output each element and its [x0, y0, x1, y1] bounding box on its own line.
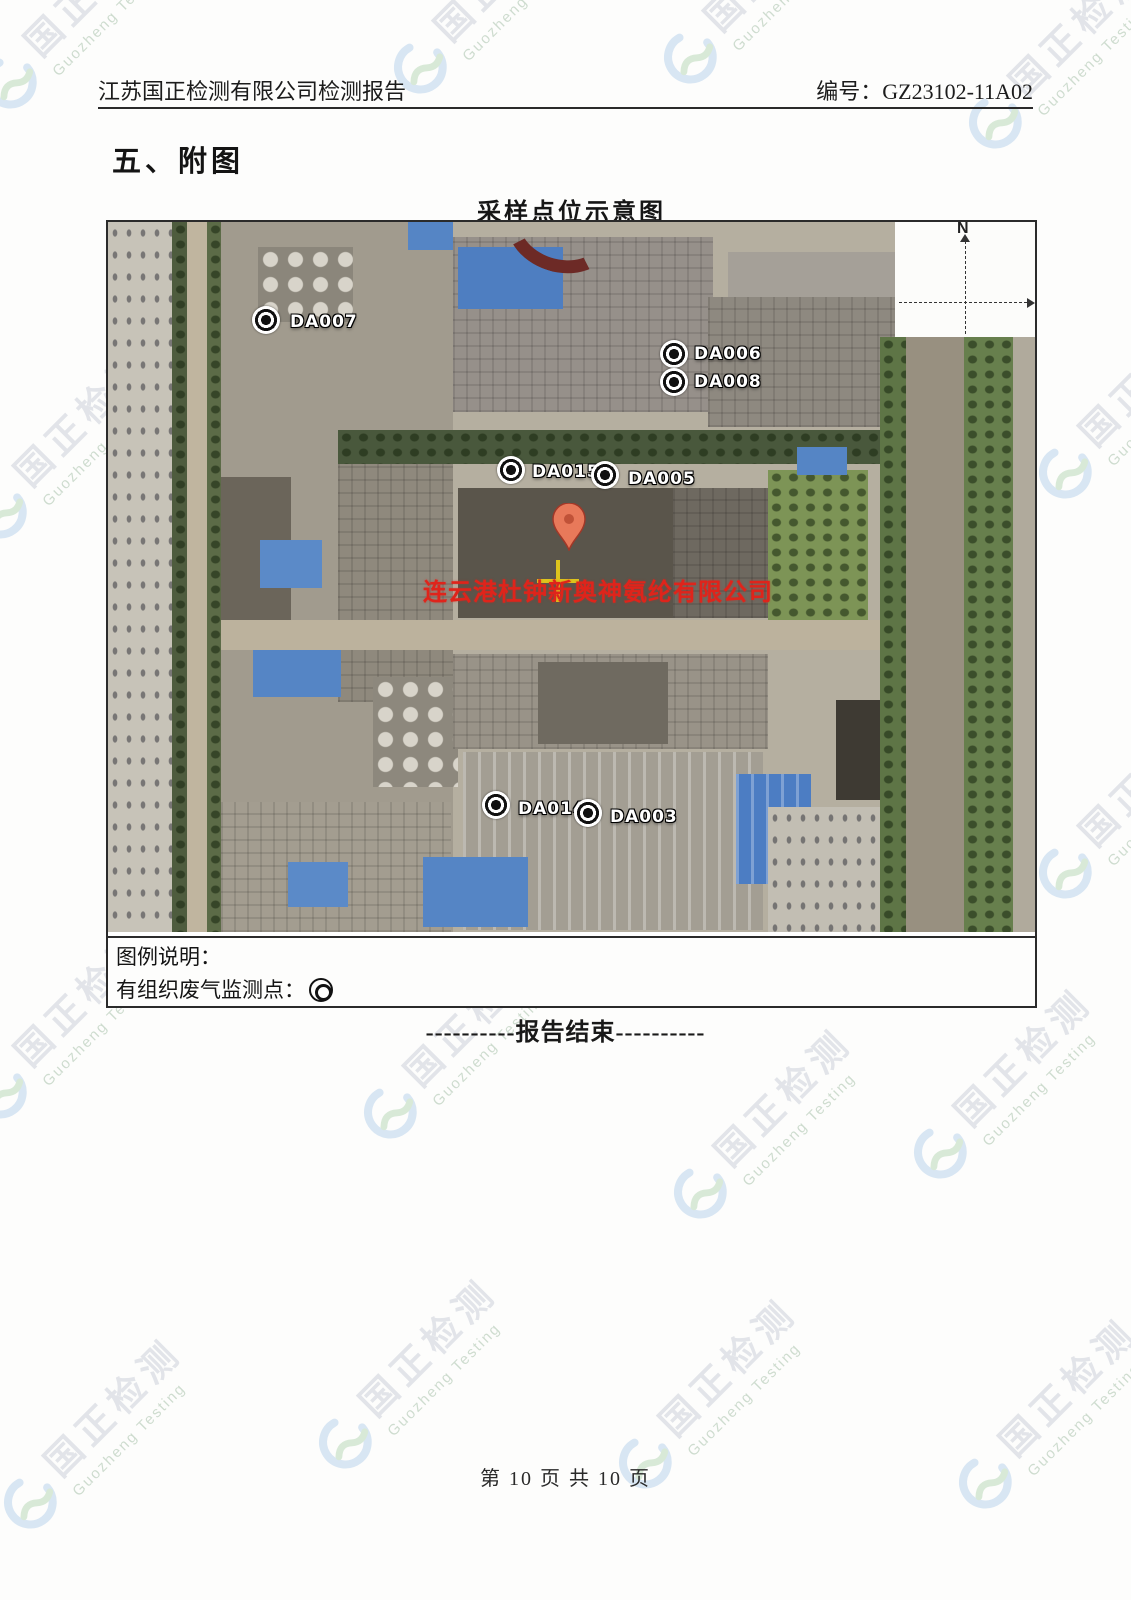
legend-item-label: 有组织废气监测点：	[116, 978, 305, 1002]
company-report-title: 江苏国正检测有限公司检测报告	[98, 74, 406, 106]
map-feature-blue-roof	[253, 647, 341, 697]
compass-north-label: N	[957, 222, 969, 238]
watermark-cn: 国正检测	[345, 1264, 508, 1427]
marker-label: DA007	[290, 312, 358, 332]
watermark-en: Guozheng Testing	[739, 1053, 875, 1189]
guozheng-logo-icon	[894, 1108, 982, 1196]
page-number: 第 10 页 共 10 页	[0, 1462, 1131, 1491]
watermark-cn: 国正检测	[1065, 294, 1131, 457]
map-feature-tree-row	[207, 222, 221, 932]
guozheng-logo-icon	[0, 1048, 42, 1136]
map-frame: N 连云港杜钟新奥神氨纶有限公司 DA007 DA006 DA008 DA	[106, 220, 1037, 1008]
marker-label: DA015	[532, 462, 600, 482]
report-page: 国正检测Guozheng Testing 国正检测Guozheng Testin…	[0, 0, 1131, 1600]
watermark-en: Guozheng Testing	[1034, 0, 1131, 120]
guozheng-logo-icon	[0, 38, 52, 126]
sampling-point-icon-DA015	[497, 456, 525, 484]
watermark: 国正检测Guozheng Testing	[0, 1324, 206, 1550]
marker-label: DA006	[694, 344, 762, 364]
map-feature-ground-east	[1013, 337, 1035, 932]
guozheng-logo-icon	[0, 468, 42, 556]
marker-label: DA008	[694, 372, 762, 392]
map-feature-tank-farm	[373, 677, 458, 787]
watermark: 国正检测Guozheng Testing	[650, 1014, 876, 1240]
marker-label: DA003	[610, 807, 678, 827]
header-rule	[98, 107, 1033, 109]
map-feature-blue-roof	[797, 447, 847, 475]
watermark-en: Guozheng Testing	[729, 0, 865, 55]
compass-horizontal-axis	[899, 302, 1031, 303]
watermark-en: Guozheng Testing	[684, 1323, 820, 1459]
watermark: 国正检测Guozheng Testing	[0, 0, 186, 129]
map-feature-parking-west	[108, 222, 172, 932]
watermark-cn: 国正检测	[690, 0, 853, 41]
watermark-cn: 国正检测	[985, 1304, 1131, 1467]
watermark-en: Guozheng Testing	[459, 0, 595, 65]
sampling-point-icon-DA003	[574, 799, 602, 827]
watermark-en: Guozheng Testing	[1104, 333, 1131, 469]
watermark: 国正检测Guozheng Testing	[935, 1304, 1131, 1530]
watermark-cn: 国正检测	[10, 0, 173, 66]
sampling-point-icon-DA005	[591, 461, 619, 489]
sampling-point-icon-DA014	[482, 791, 510, 819]
location-pin-icon	[551, 503, 587, 551]
map-feature-dark-unit	[538, 662, 668, 744]
report-number: 编号：GZ23102-11A02	[816, 74, 1033, 106]
sampling-point-icon-DA007	[252, 306, 280, 334]
map-feature-tree-row	[172, 222, 187, 932]
map-feature-blue-roof	[288, 862, 348, 907]
map-feature-blue-roof	[423, 857, 528, 927]
watermark-en: Guozheng Testing	[384, 1303, 520, 1439]
legend-title: 图例说明：	[116, 941, 221, 971]
sampling-point-icon-DA006	[660, 340, 688, 368]
watermark-en: Guozheng Testing	[1024, 1343, 1131, 1479]
sampling-point-icon-DA008	[660, 368, 688, 396]
compass-vertical-axis	[965, 238, 966, 334]
legend-item: 有组织废气监测点：	[116, 974, 333, 1004]
map-feature-road-west	[187, 222, 207, 932]
legend-box: 图例说明： 有组织废气监测点：	[108, 936, 1035, 1006]
map-feature-tree-row-east	[964, 337, 1013, 932]
map-feature-building-ne-strip	[728, 252, 908, 297]
compass-east-arrow-icon	[1027, 298, 1035, 308]
marker-label: DA005	[628, 469, 696, 489]
satellite-map: N 连云港杜钟新奥神氨纶有限公司 DA007 DA006 DA008 DA	[108, 222, 1035, 932]
stack-monitoring-point-icon	[309, 978, 333, 1002]
guozheng-logo-icon	[654, 1148, 742, 1236]
map-feature-tree-row-east	[880, 337, 906, 932]
compass: N	[895, 222, 1035, 337]
map-feature-blue-roof	[408, 222, 453, 250]
map-feature-blue-roof	[260, 540, 322, 588]
watermark-cn: 国正检测	[1065, 694, 1131, 857]
guozheng-logo-icon	[644, 13, 732, 101]
watermark-cn: 国正检测	[645, 1284, 808, 1447]
watermark-en: Guozheng Testing	[49, 0, 185, 80]
guozheng-logo-icon	[344, 1068, 432, 1156]
section-title: 五、附图	[112, 138, 244, 180]
map-feature-lawn	[768, 470, 868, 635]
report-end-text: ----------报告结束----------	[0, 1012, 1131, 1047]
company-name-label: 连云港杜钟新奥神氨纶有限公司	[423, 572, 768, 607]
watermark: 国正检测Guozheng Testing	[295, 1264, 521, 1490]
watermark-cn: 国正检测	[420, 0, 583, 51]
map-feature-road-east	[906, 337, 964, 932]
watermark-en: Guozheng Testing	[1104, 733, 1131, 869]
